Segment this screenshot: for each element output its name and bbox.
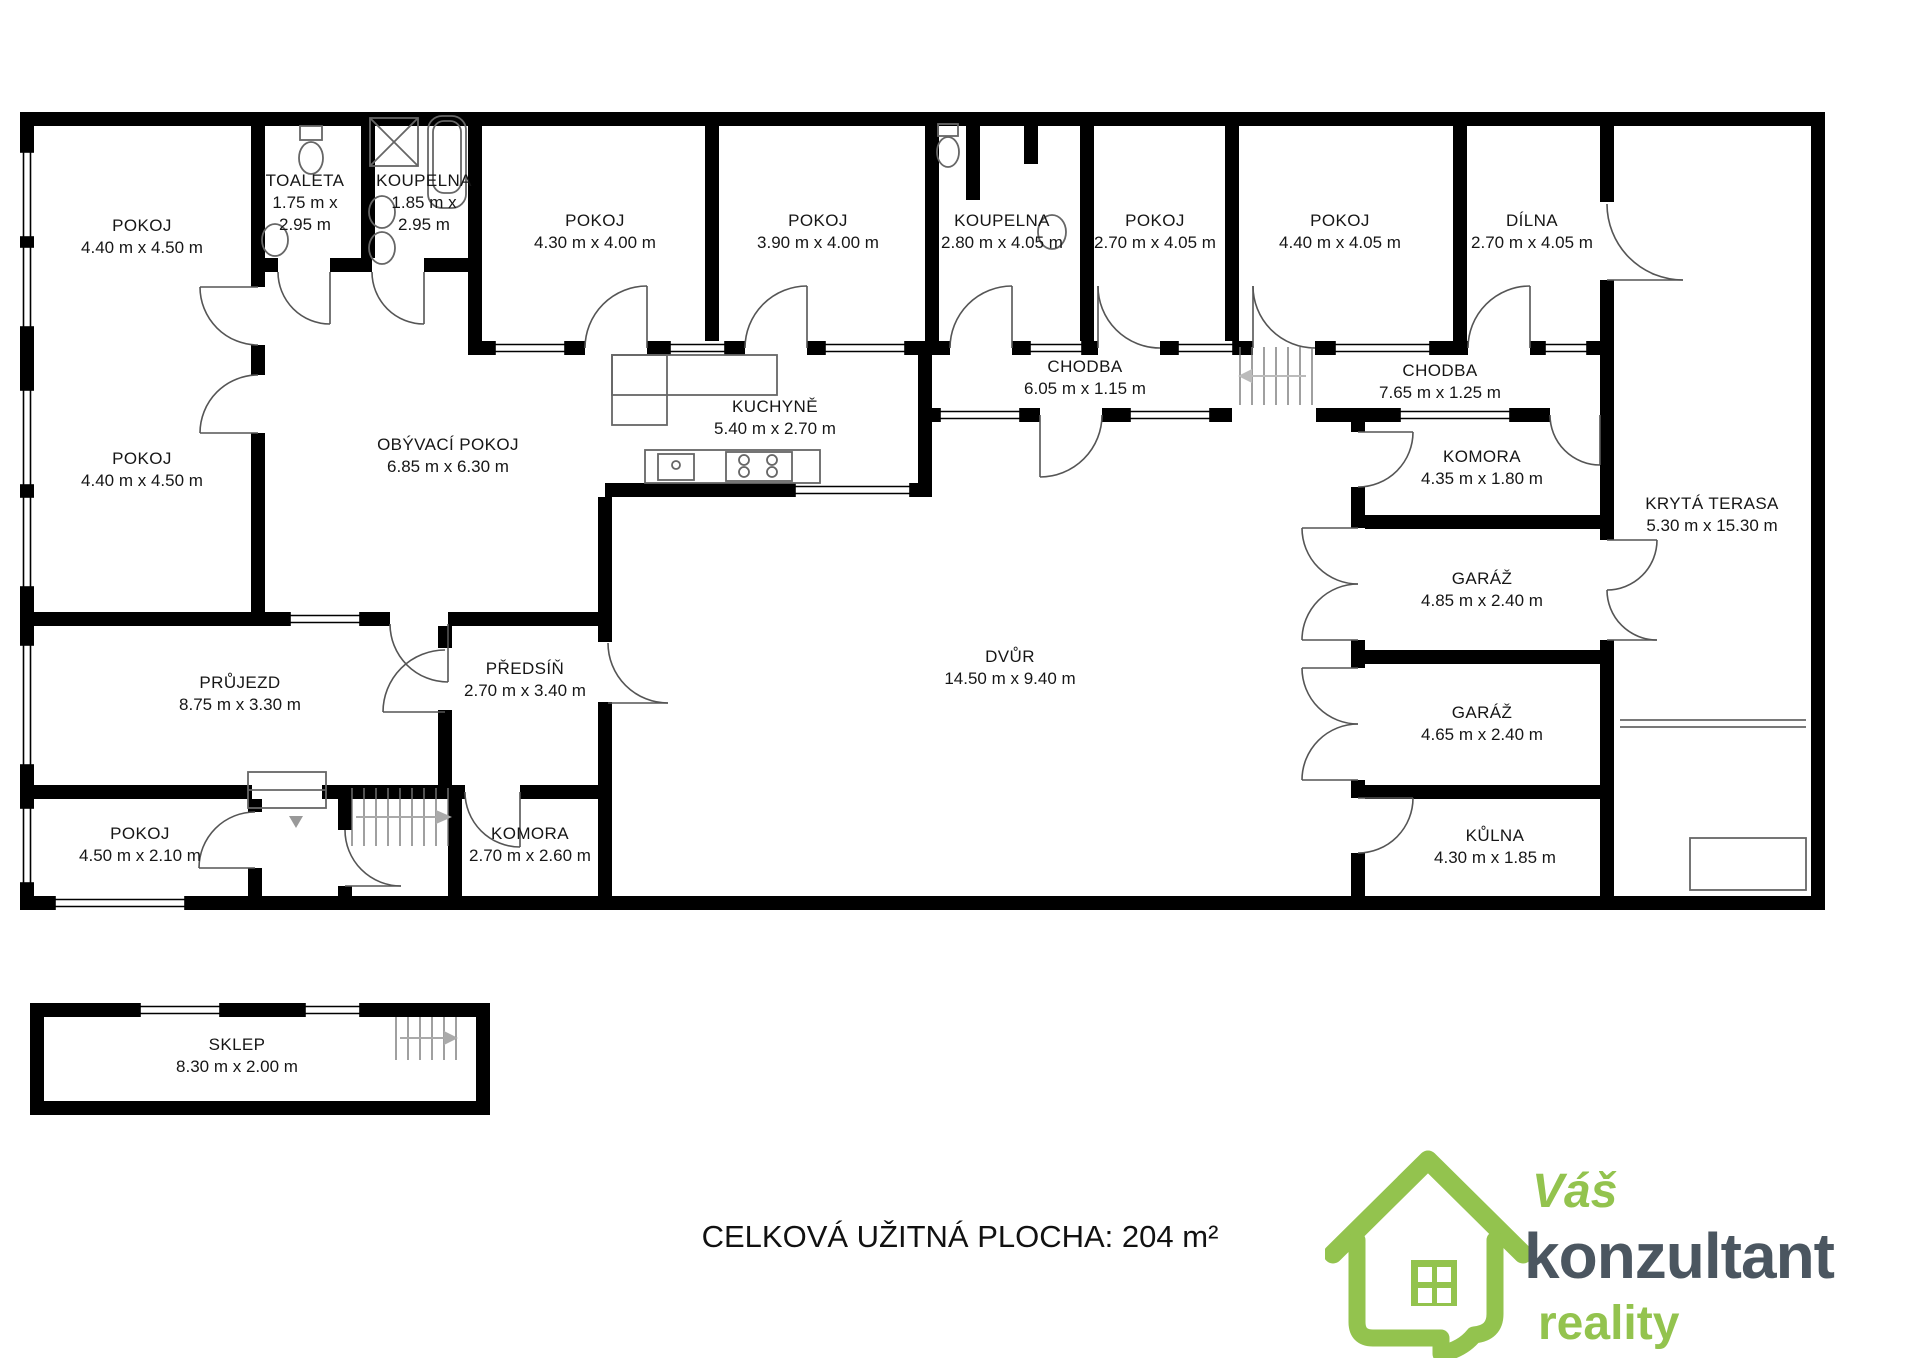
logo-konzultant-text: konzultant [1524, 1224, 1834, 1288]
floor-plan-page: POKOJ4.40 m x 4.50 m TOALETA1.75 m x 2.9… [0, 0, 1920, 1358]
logo-reality-text: reality [1538, 1300, 1679, 1348]
logo-vas-text: Váš [1532, 1168, 1617, 1216]
logo-house-icon [1325, 1142, 1530, 1358]
summary-total-area: CELKOVÁ UŽITNÁ PLOCHA: 204 m² [485, 1212, 1435, 1262]
area-summary: CELKOVÁ UŽITNÁ PLOCHA: 204 m² SKLEP: 17 … [485, 1112, 1435, 1358]
